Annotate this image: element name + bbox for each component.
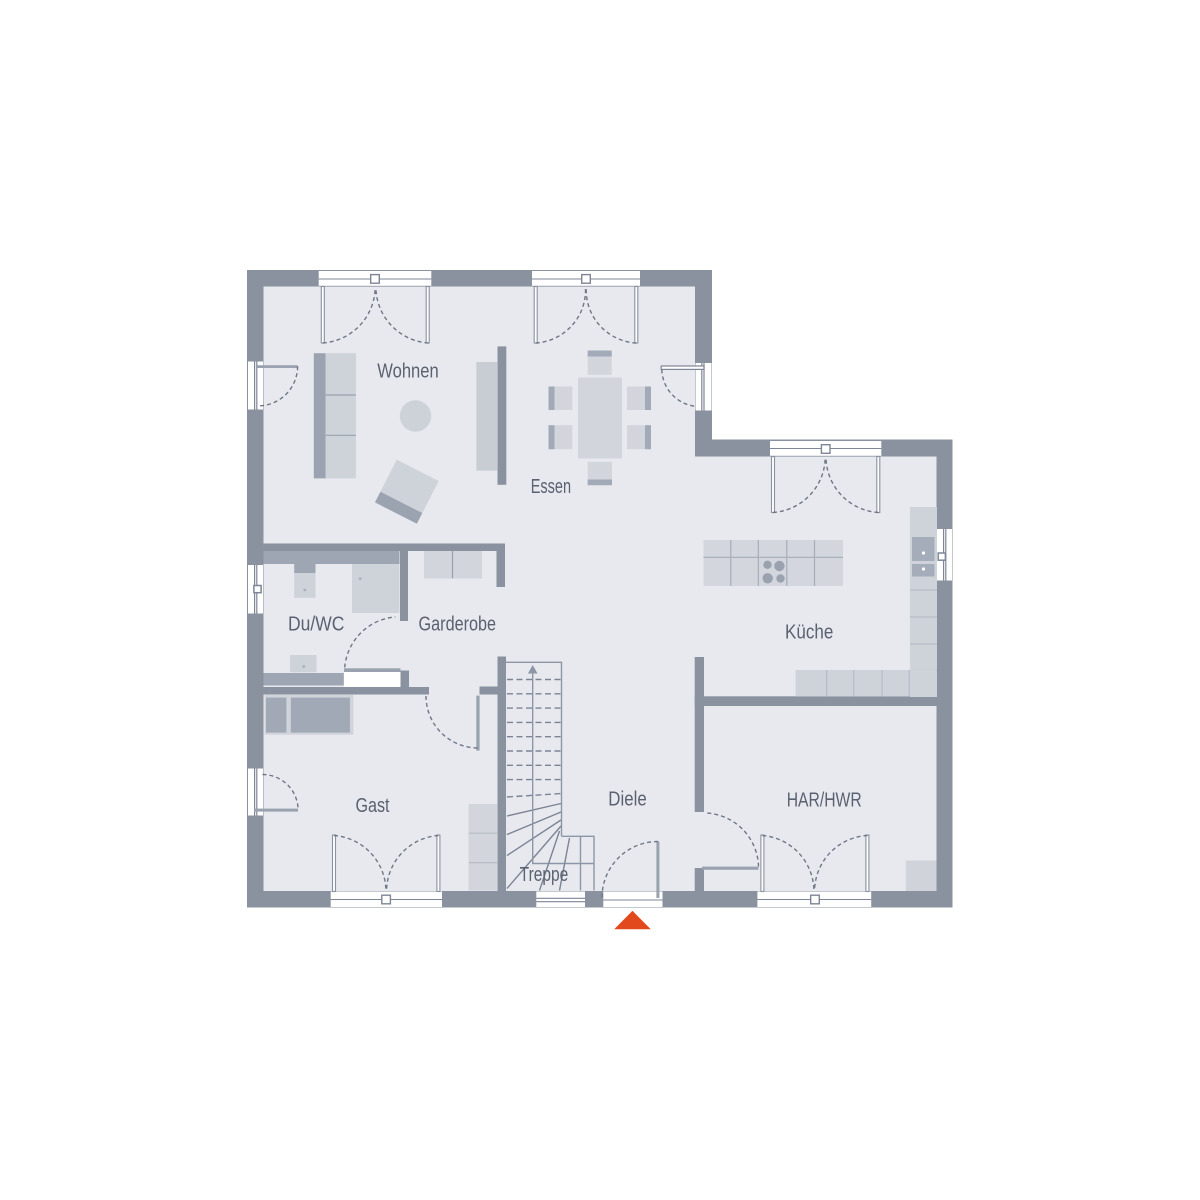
svg-text:Küche: Küche (785, 621, 833, 643)
svg-text:Garderobe: Garderobe (419, 614, 497, 636)
svg-text:Du/WC: Du/WC (288, 613, 344, 635)
svg-text:HAR/HWR: HAR/HWR (787, 790, 862, 812)
svg-text:Essen: Essen (531, 476, 571, 498)
svg-text:Treppe: Treppe (520, 864, 569, 886)
svg-text:Diele: Diele (608, 789, 646, 811)
svg-text:Wohnen: Wohnen (377, 361, 438, 383)
svg-text:Gast: Gast (355, 795, 389, 817)
